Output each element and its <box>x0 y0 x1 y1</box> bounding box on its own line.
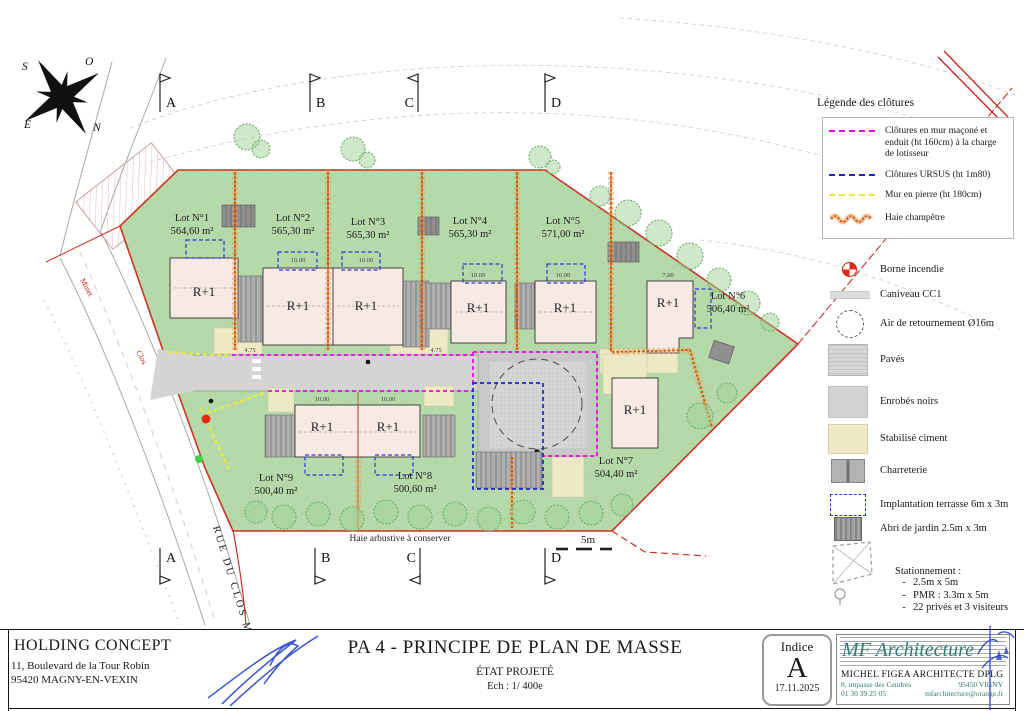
fence-item-label: Clôtures URSUS (ht 1m80) <box>885 170 990 182</box>
street-tree-dot <box>195 455 203 463</box>
revision-value: A <box>764 655 830 681</box>
legend-row-enrobes: Enrobés noirs <box>828 386 1024 418</box>
cement-swatch <box>828 424 868 454</box>
rplus1-label: R+1 <box>287 298 310 313</box>
section-a-bottom: A <box>166 551 177 566</box>
compass-o: O <box>85 56 94 68</box>
lot-3-area: 565,30 m² <box>347 230 390 241</box>
lot-5-name: Lot N°5 <box>546 216 580 227</box>
fence-item-label: Clôtures en mur maçoné et enduit (ht 160… <box>885 126 1007 161</box>
lot-7-area: 504,40 m² <box>595 469 638 480</box>
signature-right <box>968 624 1022 711</box>
lot-6-name: Lot N°6 <box>711 291 745 302</box>
parking-legend: Stationnement : - 2.5m x 5m - PMR : 3.3m… <box>895 566 1024 615</box>
revision-box: Indice A 17.11.2025 <box>762 634 832 706</box>
fence-item-label: Mur en pierre (ht 180cm) <box>885 190 982 202</box>
architect-phone: 01 30 39 25 05 <box>841 689 886 698</box>
lot-8-name: Lot N°8 <box>398 471 432 482</box>
hedge-squiggle-icon <box>829 211 875 225</box>
legend-row-terrasse: Implantation terrasse 6m x 3m <box>828 494 1024 516</box>
drawing-subtitle: ÉTAT PROJETÉ <box>300 666 730 678</box>
bullet-dash: - <box>895 590 913 603</box>
drawing-title: PA 4 - PRINCIPE DE PLAN DE MASSE <box>300 637 730 659</box>
svg-text:4.75: 4.75 <box>430 347 441 354</box>
rplus1-label: R+1 <box>467 300 490 315</box>
svg-text:10.00: 10.00 <box>471 272 486 279</box>
legend-row-air: Air de retournement Ø16m <box>828 310 1024 338</box>
lot-5-area: 571,00 m² <box>542 229 585 240</box>
section-d-top: D <box>551 96 561 111</box>
street-name-red-1: Minet <box>78 277 95 299</box>
asphalt-swatch <box>828 386 868 418</box>
lot-4-area: 565,30 m² <box>449 229 492 240</box>
compass-e: E <box>23 119 31 131</box>
lot-1-area: 564,60 m² <box>171 226 214 237</box>
fence-legend-item: Clôtures URSUS (ht 1m80) <box>829 170 1007 182</box>
fence-item-label: Haie champêtre <box>885 213 945 225</box>
lot-7-name: Lot N°7 <box>599 456 633 467</box>
svg-text:10.00: 10.00 <box>315 396 330 403</box>
parking-bullet: - 22 privés et 3 visiteurs <box>895 602 1024 615</box>
legend-row-charreterie: Charreterie <box>828 459 1024 483</box>
lot-1-name: Lot N°1 <box>175 213 209 224</box>
lot-3-name: Lot N°3 <box>351 217 385 228</box>
rplus1-label: R+1 <box>657 295 680 310</box>
legend-label: Enrobés noirs <box>880 396 938 408</box>
scale-marker: 5m <box>581 534 596 546</box>
client-address-1: 11, Boulevard de la Tour Robin <box>11 660 150 672</box>
fence-legend-title: Légende des clôtures <box>817 97 914 109</box>
garden-shed-swatch <box>834 517 862 541</box>
gutter-icon <box>830 291 870 299</box>
rplus1-label: R+1 <box>311 419 334 434</box>
fence-legend-item: Haie champêtre <box>829 211 1007 230</box>
lot-9-name: Lot N°9 <box>259 473 293 484</box>
stone-wall-swatch <box>829 194 875 196</box>
svg-text:7.00: 7.00 <box>662 272 673 279</box>
street-name-red-2: Clos <box>134 349 149 366</box>
fire-hydrant-dot <box>202 415 211 424</box>
rplus1-label: R+1 <box>355 298 378 313</box>
bullet-text: 2.5m x 5m <box>913 577 958 590</box>
client-address-2: 95420 MAGNY-EN-VEXIN <box>11 674 138 686</box>
fence-legend-item: Clôtures en mur maçoné et enduit (ht 160… <box>829 126 1007 161</box>
bullet-text: PMR : 3.3m x 5m <box>913 590 989 603</box>
legend-row-borne: Borne incendie <box>828 262 1024 277</box>
compass-s: S <box>22 61 28 73</box>
section-markers-top <box>160 74 555 112</box>
legend-label: Implantation terrasse 6m x 3m <box>880 499 1008 511</box>
parking-icon <box>830 540 876 611</box>
legend-label: Borne incendie <box>880 264 944 276</box>
bullet-dash: - <box>895 577 913 590</box>
architect-logo: MF Architecture <box>842 639 974 662</box>
magenta-fence-swatch <box>829 130 875 132</box>
parking-bullet: - 2.5m x 5m <box>895 577 1024 590</box>
legend-label: Pavés <box>880 354 905 366</box>
architect-address: 8, impasse des Cendres <box>841 680 911 689</box>
parking-bullet: - PMR : 3.3m x 5m <box>895 590 1024 603</box>
section-b-bottom: B <box>321 551 330 566</box>
svg-text:10.00: 10.00 <box>291 257 306 264</box>
hydrant-icon <box>842 262 857 277</box>
legend-row-caniveau: Caniveau CC1 <box>828 289 1024 301</box>
svg-text:10.00: 10.00 <box>556 272 571 279</box>
legend-row-abri: Abri de jardin 2.5m x 3m <box>828 517 1024 541</box>
section-c-bottom: C <box>407 551 416 566</box>
terrace-outline-icon <box>830 494 866 516</box>
lot-6-area: 506,40 m² <box>707 304 750 315</box>
section-a-top: A <box>166 96 177 111</box>
turning-circle-icon <box>836 310 864 338</box>
bullet-dash: - <box>895 602 913 615</box>
svg-text:10.00: 10.00 <box>381 396 396 403</box>
plan-sheet: Lot N°1 564,60 m² Lot N°2 565,30 m² Lot … <box>0 0 1024 711</box>
legend-label: Charreterie <box>880 465 927 477</box>
compass-n: N <box>92 122 102 134</box>
blue-fence-swatch <box>829 174 875 176</box>
legend-label: Abri de jardin 2.5m x 3m <box>880 523 987 535</box>
section-b-top: B <box>316 96 325 111</box>
legend-label: Air de retournement Ø16m <box>880 318 994 330</box>
lot-2-name: Lot N°2 <box>276 213 310 224</box>
svg-text:4.75: 4.75 <box>244 347 255 354</box>
pavers-swatch <box>828 344 868 376</box>
fence-legend-item: Mur en pierre (ht 180cm) <box>829 190 1007 202</box>
revision-date: 17.11.2025 <box>764 683 830 694</box>
rplus1-label: R+1 <box>624 402 647 417</box>
svg-text:10.00: 10.00 <box>359 257 374 264</box>
lot-4-name: Lot N°4 <box>453 216 488 227</box>
rplus1-label: R+1 <box>193 284 216 299</box>
title-block: HOLDING CONCEPT 11, Boulevard de la Tour… <box>0 629 1024 710</box>
legend-label: Caniveau CC1 <box>880 289 942 301</box>
compass-rose: S O E N <box>1 36 123 158</box>
cartshed-swatch <box>831 459 865 483</box>
lot-9-area: 500,40 m² <box>255 486 298 497</box>
lot-8-area: 500,60 m² <box>394 484 437 495</box>
hedge-swatch <box>829 211 875 230</box>
legend-label: Stabilisé ciment <box>880 433 947 445</box>
lot-2-area: 565,30 m² <box>272 226 315 237</box>
section-c-top: C <box>405 96 414 111</box>
rplus1-label: R+1 <box>377 419 400 434</box>
client-name: HOLDING CONCEPT <box>14 637 171 655</box>
rplus1-label: R+1 <box>554 300 577 315</box>
fence-legend-box: Clôtures en mur maçoné et enduit (ht 160… <box>822 117 1014 239</box>
bullet-text: 22 privés et 3 visiteurs <box>913 602 1008 615</box>
section-d-bottom: D <box>551 551 561 566</box>
hedge-note: Haie arbustive à conserver <box>349 534 451 544</box>
drawing-scale: Ech : 1/ 400e <box>300 681 730 692</box>
parking-title: Stationnement : <box>895 566 1024 577</box>
legend-row-paves: Pavés <box>828 344 1024 376</box>
legend-row-stabilise: Stabilisé ciment <box>828 424 1024 454</box>
